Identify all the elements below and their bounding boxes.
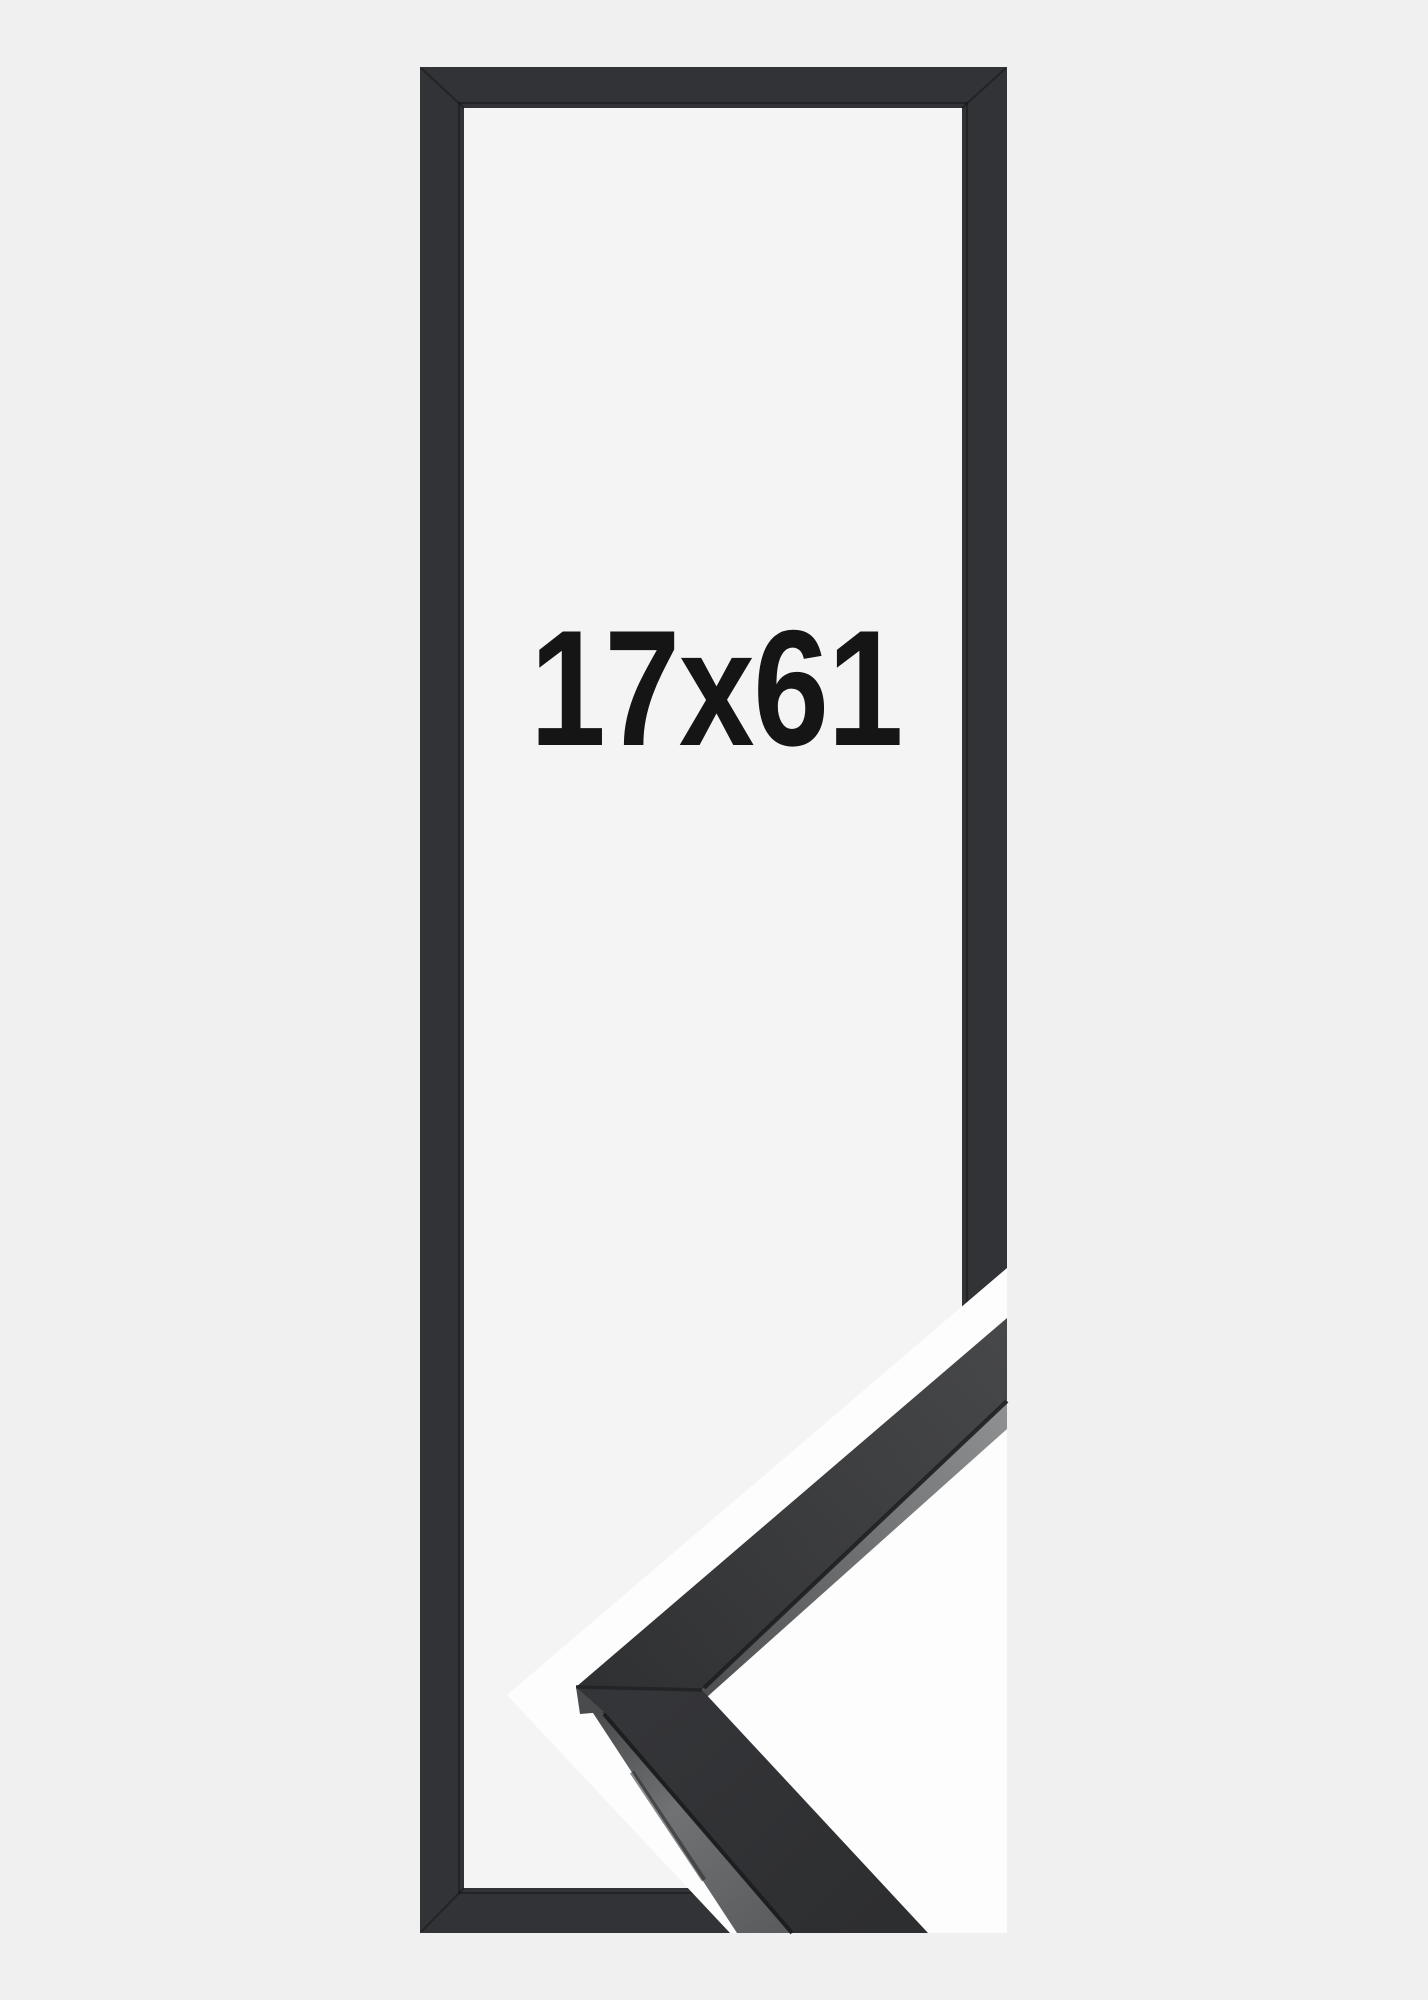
size-label: 17x61 [530,596,902,780]
product-image-frame-17x61: 17x61 [0,0,1428,2000]
frame-product-illustration: 17x61 [0,0,1428,2000]
